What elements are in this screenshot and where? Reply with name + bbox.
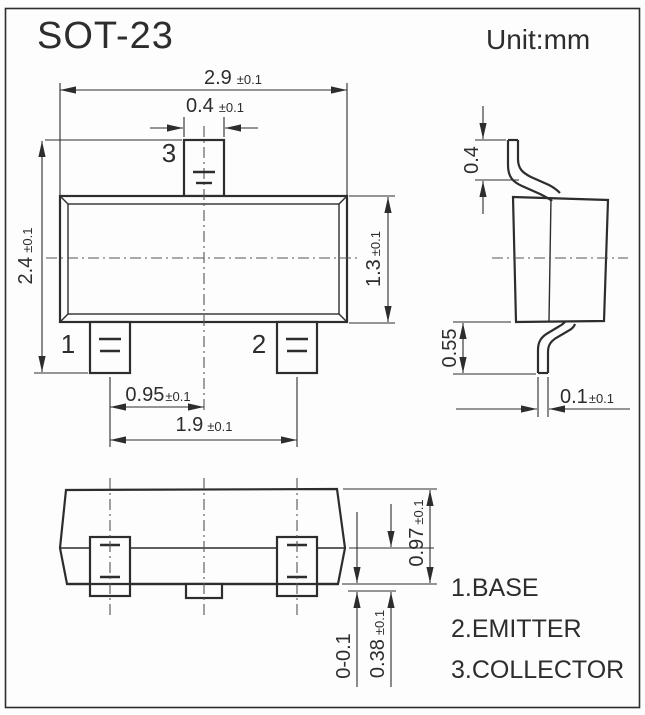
package-title: SOT-23 [37, 15, 174, 57]
side-body-outline [513, 197, 608, 322]
svg-text:0.95±0.1: 0.95±0.1 [125, 384, 190, 406]
dim-value: 1.9 [175, 414, 203, 436]
svg-text:2.4±0.1: 2.4±0.1 [15, 227, 37, 284]
dim-tolerance: ±0.1 [219, 100, 244, 115]
dim-value: 0.95 [125, 384, 164, 406]
side-top-lead [508, 140, 560, 201]
pin-legend: 1.BASE 2.EMITTER 3.COLLECTOR [451, 574, 624, 684]
svg-text:0.4: 0.4 [461, 146, 483, 174]
pin1-label: 1 [61, 329, 75, 359]
unit-label: Unit:mm [486, 24, 590, 55]
dim-tolerance: ±0.1 [207, 419, 232, 434]
svg-text:0.55: 0.55 [439, 329, 461, 368]
dim-tolerance: ±0.1 [411, 499, 426, 524]
dim-value: 0.4 [461, 146, 483, 174]
legend-item-collector: 3.COLLECTOR [451, 656, 624, 684]
dim-tolerance: ±0.1 [372, 610, 387, 635]
svg-text:0.97±0.1: 0.97±0.1 [406, 499, 428, 566]
drawing-page: SOT-23 Unit:mm 1 2 3 [0, 0, 645, 715]
dim-value: 0.97 [406, 528, 428, 567]
pin1-lead [90, 322, 130, 373]
pin2-lead [277, 322, 317, 373]
pin2-label: 2 [252, 329, 266, 359]
dim-tolerance: ±0.1 [589, 391, 614, 406]
bottom-view-dimensions: 0.97±0.1 0.38±0.1 0-0.1 [333, 489, 437, 687]
svg-text:1.3±0.1: 1.3±0.1 [363, 231, 385, 287]
legend-item-base: 1.BASE [451, 574, 539, 602]
dim-tolerance: ±0.1 [165, 389, 190, 404]
svg-text:0.38±0.1: 0.38±0.1 [367, 610, 389, 678]
legend-item-emitter: 2.EMITTER [451, 615, 582, 643]
dim-body-height: 1.3±0.1 [349, 196, 395, 323]
dim-value: 0.1 [560, 386, 588, 408]
dim-tolerance: ±0.1 [20, 227, 35, 252]
pin3-label: 3 [162, 138, 176, 168]
svg-text:1.9±0.1: 1.9±0.1 [175, 414, 232, 436]
dim-value: 0.4 [186, 95, 214, 117]
dim-tolerance: ±0.1 [368, 231, 383, 256]
dim-package-height: 0.97±0.1 [406, 490, 430, 583]
svg-text:0.1±0.1: 0.1±0.1 [560, 386, 614, 408]
dim-pin-offset: 0.95±0.1 [110, 377, 204, 447]
bottom-view [60, 478, 345, 616]
dim-tolerance: ±0.1 [237, 72, 262, 87]
dim-value: 0.38 [367, 639, 389, 678]
dim-value: 0-0.1 [333, 633, 355, 679]
side-view [492, 140, 628, 373]
front-view: 1 2 3 [46, 126, 360, 412]
svg-text:0.4±0.1: 0.4±0.1 [186, 95, 244, 117]
svg-text:0-0.1: 0-0.1 [333, 633, 355, 679]
sot23-package-drawing: SOT-23 Unit:mm 1 2 3 [0, 0, 645, 715]
dim-value: 1.3 [363, 259, 385, 287]
dim-foot-height: 0.38±0.1 [367, 504, 391, 687]
dim-lead-top: 0.4 [461, 106, 519, 214]
svg-text:2.9±0.1: 2.9±0.1 [204, 67, 262, 89]
dim-value: 2.4 [15, 257, 37, 285]
dim-value: 0.55 [439, 329, 461, 368]
side-bottom-lead [538, 322, 575, 373]
dim-value: 2.9 [204, 67, 232, 89]
dim-lead-bottom: 0.55 [439, 322, 536, 374]
dim-lead-thickness: 0.1±0.1 [456, 377, 630, 417]
